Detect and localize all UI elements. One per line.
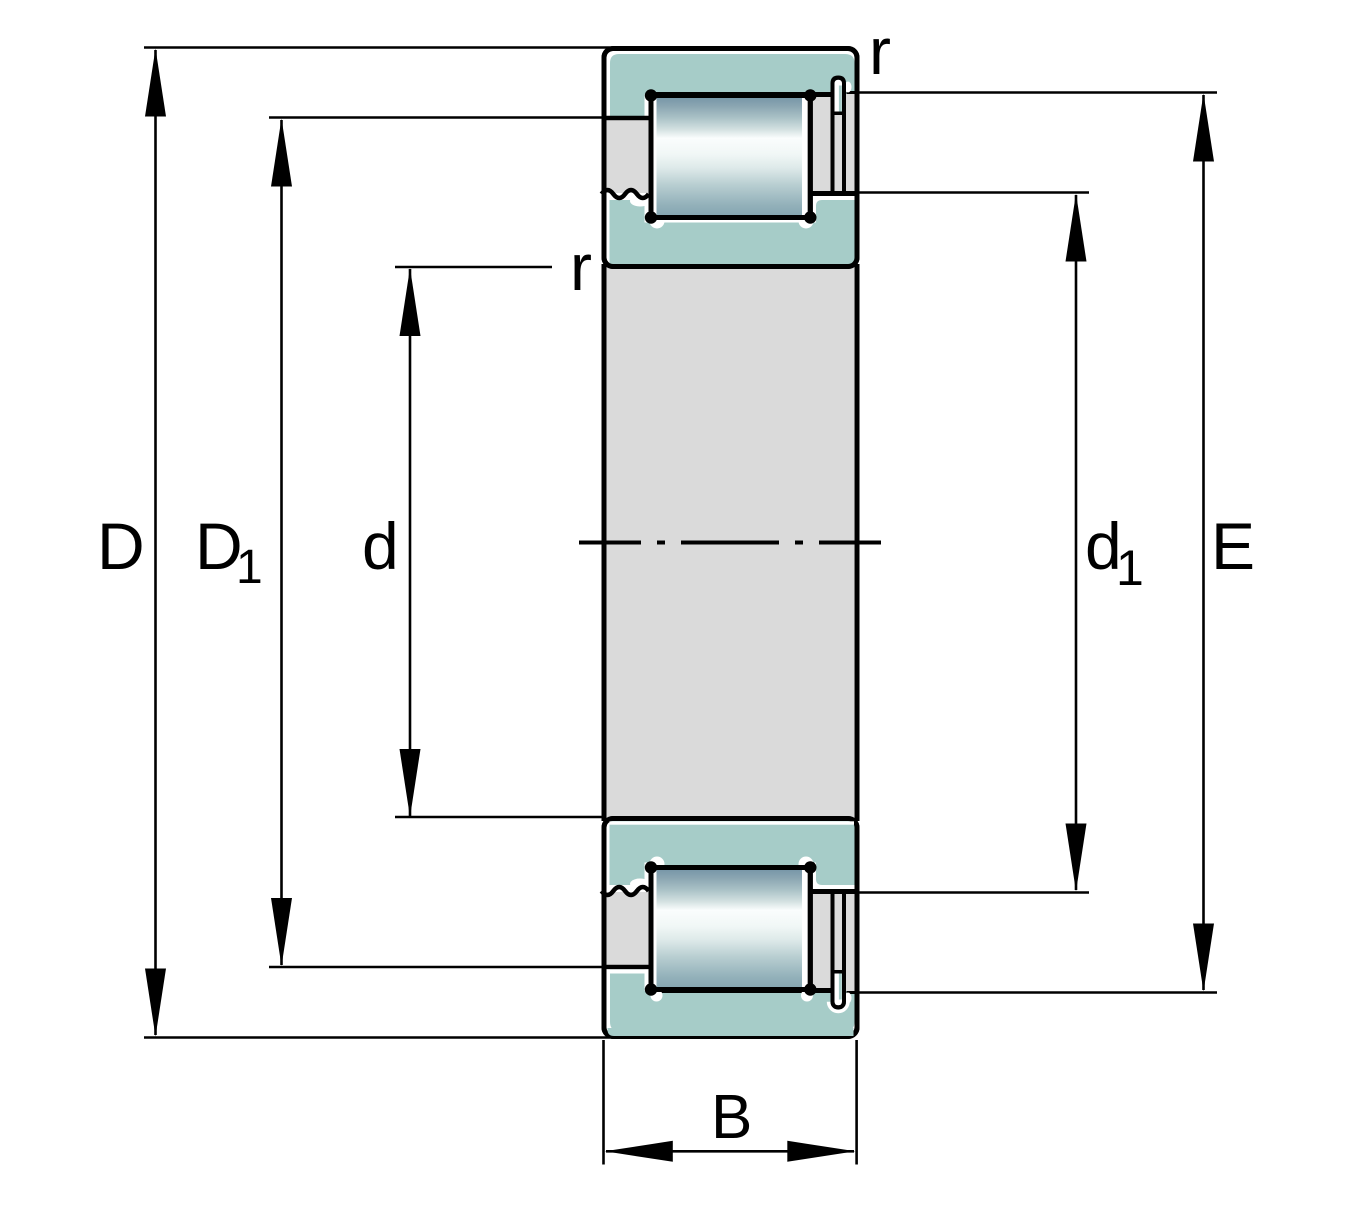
svg-text:B: B [711, 1083, 752, 1152]
svg-text:D: D [97, 509, 145, 583]
svg-text:1: 1 [1116, 540, 1144, 596]
svg-text:r: r [869, 14, 891, 88]
svg-text:d: d [362, 509, 399, 583]
svg-text:E: E [1211, 509, 1255, 583]
svg-text:1: 1 [236, 541, 263, 594]
svg-text:r: r [570, 230, 592, 304]
